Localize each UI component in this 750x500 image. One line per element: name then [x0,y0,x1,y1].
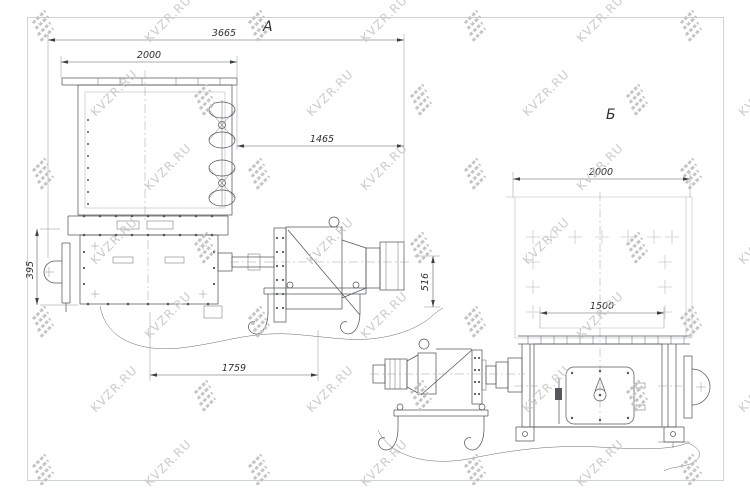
view-b-body [514,336,690,448]
vent-plug-icon [329,217,339,227]
dimension-2000-b: 2000 [513,167,690,197]
door-hinge-bottom [636,405,645,410]
base-bolt-right [353,282,359,288]
body-slot-1 [113,257,133,263]
foot-right-base [658,442,690,448]
door-hinge-top [636,383,645,388]
view-b-drive [370,339,700,471]
dimension-1465: 1465 [237,134,404,148]
bracket-center-mark [44,267,54,277]
dimension-1759: 1759 [150,312,318,381]
motor-mid [366,248,380,288]
door-keyhole-dot [599,394,602,397]
base-b-foot-left [378,428,398,450]
view-a-outlet [100,306,443,349]
drive-b-base-frame [394,410,488,428]
hopper-top-plate [62,78,237,85]
dim-1500-value: 1500 [590,301,614,312]
body-b-centerlines [514,348,682,427]
shaft-b-link [482,360,486,390]
dim-516-value: 516 [420,273,431,291]
dim-1759-value: 1759 [222,363,246,374]
ground-curve [100,306,443,349]
view-a-body [68,215,228,306]
body-bolts [83,215,215,306]
body-b-foot-left [516,427,534,441]
body-corner-marks [91,242,207,298]
hopper-top-ticks [98,78,220,85]
foot-right-bolt [671,432,676,437]
dim-3665-value: 3665 [212,28,236,39]
foot-left-bolt [523,432,528,437]
body-b-foot-right [664,427,684,442]
technical-drawing: 3665 2000 1465 395 516 [0,0,750,500]
view-b-right-bracket [684,356,710,418]
body-b-outline [534,344,662,427]
body-slot-2 [165,257,184,263]
body-band-slot-1 [117,221,139,229]
base-b-bolt-right [479,404,485,410]
dim-1465-value: 1465 [310,134,334,145]
base-b-foot-right [464,428,484,450]
flange-b-bolts [474,357,480,395]
drawing-canvas: 3665 2000 1465 395 516 [0,0,750,500]
motor-end-lines [386,242,398,290]
drive-flange-plate [274,228,286,322]
dimension-516: 516 [414,256,440,307]
base-foot-right [340,312,360,334]
base-bolt-left [287,282,293,288]
belt-guard-housing [286,227,342,309]
hopper-outline [78,85,232,215]
shaft-b-step3 [486,366,496,384]
sheet-frame [28,18,724,481]
shaft-b-step2 [496,362,508,388]
motor-end-bell [380,242,404,290]
dimension-3665: 3665 [48,28,404,258]
motor-b-block [418,353,436,394]
body-outline [80,235,218,304]
motor-cone [342,240,366,298]
body-band-slot-2 [147,221,173,229]
hopper-inner [85,92,225,208]
body-b-plates [522,344,676,427]
body-b-top-band [518,336,690,344]
view-a: 3665 2000 1465 395 516 [25,19,443,381]
drive-base-frame [264,288,366,312]
base-b-bolt-left [397,404,403,410]
dim-2000b-value: 2000 [589,167,613,178]
drive-b-flange-plate [472,350,482,404]
hopper-bolts [87,119,89,205]
flange-bolts [276,237,284,309]
vent-plug-b-icon [419,339,429,349]
ground-curve-b [378,430,700,471]
view-a-label: А [262,19,273,35]
dimension-2000-a: 2000 [61,50,237,150]
view-a-hopper [62,70,237,221]
bracket-b-plate [684,356,692,418]
bracket-plate [62,243,70,312]
body-top-band [68,216,228,235]
dim-2000a-value: 2000 [137,50,161,61]
dimension-1500: 1500 [540,301,664,328]
bracket-b-center-mark [696,382,706,392]
dim-395-value: 395 [25,261,36,279]
view-b-label: Б [606,107,616,123]
door-latch [555,388,562,400]
body-b-top-ticks [528,336,684,344]
view-a-drive [218,217,412,334]
base-foot-left [248,312,268,334]
outlet-box [204,306,222,318]
shaft-connector [218,253,232,271]
shaft-b-step1 [508,358,522,392]
belt-guard-b [421,349,472,395]
